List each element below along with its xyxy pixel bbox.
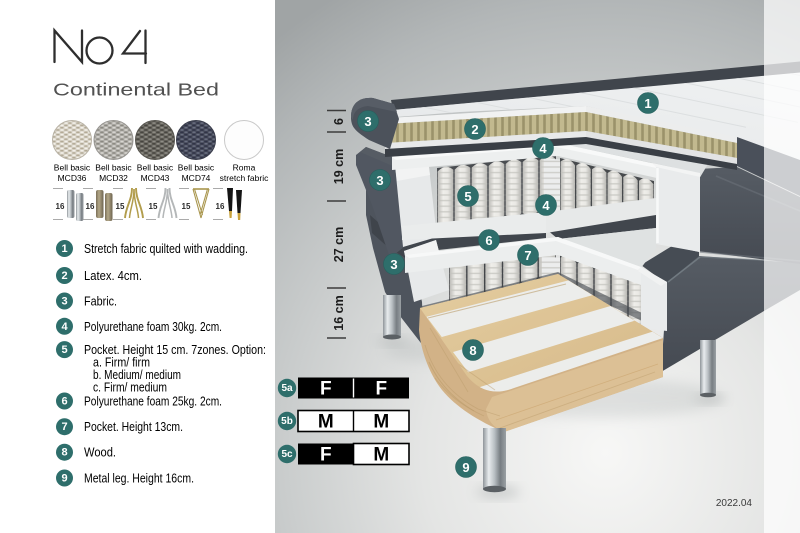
- svg-text:Polyurethane foam 30kg. 2cm.: Polyurethane foam 30kg. 2cm.: [84, 319, 222, 334]
- svg-text:5b: 5b: [281, 416, 293, 427]
- svg-text:stretch fabric: stretch fabric: [220, 173, 269, 183]
- svg-text:6: 6: [485, 233, 492, 248]
- svg-text:Fabric.: Fabric.: [84, 294, 117, 309]
- svg-text:F: F: [320, 445, 332, 466]
- svg-text:7: 7: [524, 248, 531, 263]
- svg-text:2: 2: [61, 270, 67, 282]
- svg-text:16 cm: 16 cm: [332, 295, 346, 330]
- svg-text:9: 9: [61, 473, 67, 485]
- svg-text:MCD74: MCD74: [182, 173, 211, 183]
- svg-text:27 cm: 27 cm: [332, 227, 346, 262]
- svg-text:M: M: [373, 445, 389, 466]
- svg-text:Bell basic: Bell basic: [54, 163, 91, 173]
- svg-text:16: 16: [216, 202, 225, 211]
- svg-text:MCD36: MCD36: [58, 173, 87, 183]
- svg-text:4: 4: [61, 321, 68, 333]
- svg-text:F: F: [375, 379, 387, 400]
- svg-text:1: 1: [644, 96, 651, 111]
- svg-text:Bell basic: Bell basic: [137, 163, 174, 173]
- svg-text:16: 16: [86, 202, 95, 211]
- svg-text:1: 1: [61, 243, 67, 255]
- svg-text:Bell basic: Bell basic: [178, 163, 215, 173]
- svg-text:2: 2: [471, 122, 478, 137]
- svg-text:MCD43: MCD43: [141, 173, 170, 183]
- svg-text:15: 15: [182, 202, 191, 211]
- svg-text:8: 8: [469, 343, 476, 358]
- svg-text:M: M: [318, 412, 334, 433]
- svg-text:19 cm: 19 cm: [332, 149, 346, 184]
- svg-text:8: 8: [61, 447, 67, 459]
- svg-text:3: 3: [364, 114, 371, 129]
- svg-text:Latex. 4cm.: Latex. 4cm.: [84, 268, 142, 283]
- svg-text:6: 6: [332, 118, 346, 125]
- svg-text:4: 4: [542, 198, 550, 213]
- svg-text:MCD32: MCD32: [99, 173, 128, 183]
- svg-text:5: 5: [61, 344, 67, 356]
- svg-text:7: 7: [61, 421, 67, 433]
- svg-text:Metal leg. Height 16cm.: Metal leg. Height 16cm.: [84, 471, 194, 486]
- svg-text:Bell basic: Bell basic: [95, 163, 132, 173]
- svg-text:3: 3: [390, 257, 397, 272]
- svg-text:5a: 5a: [281, 383, 293, 394]
- svg-text:Polyurethane foam 25kg. 2cm.: Polyurethane foam 25kg. 2cm.: [84, 394, 222, 409]
- svg-text:15: 15: [149, 202, 158, 211]
- svg-text:Pocket. Height 13cm.: Pocket. Height 13cm.: [84, 419, 183, 434]
- svg-text:15: 15: [116, 202, 125, 211]
- svg-text:5: 5: [464, 189, 471, 204]
- svg-text:Stretch fabric quilted with wa: Stretch fabric quilted with wadding.: [84, 241, 248, 256]
- svg-text:5c: 5c: [281, 449, 293, 460]
- svg-text:16: 16: [56, 202, 65, 211]
- svg-text:F: F: [320, 379, 332, 400]
- svg-text:3: 3: [376, 173, 383, 188]
- svg-text:3: 3: [61, 296, 67, 308]
- svg-text:M: M: [373, 412, 389, 433]
- svg-text:Wood.: Wood.: [84, 445, 116, 460]
- svg-text:4: 4: [539, 141, 547, 156]
- svg-text:2022.04: 2022.04: [716, 498, 753, 509]
- svg-text:Roma: Roma: [233, 163, 256, 173]
- svg-text:c. Firm/ medium: c. Firm/ medium: [93, 380, 167, 395]
- svg-text:6: 6: [61, 396, 67, 408]
- svg-text:Continental Bed: Continental Bed: [53, 80, 219, 100]
- svg-text:9: 9: [462, 460, 469, 475]
